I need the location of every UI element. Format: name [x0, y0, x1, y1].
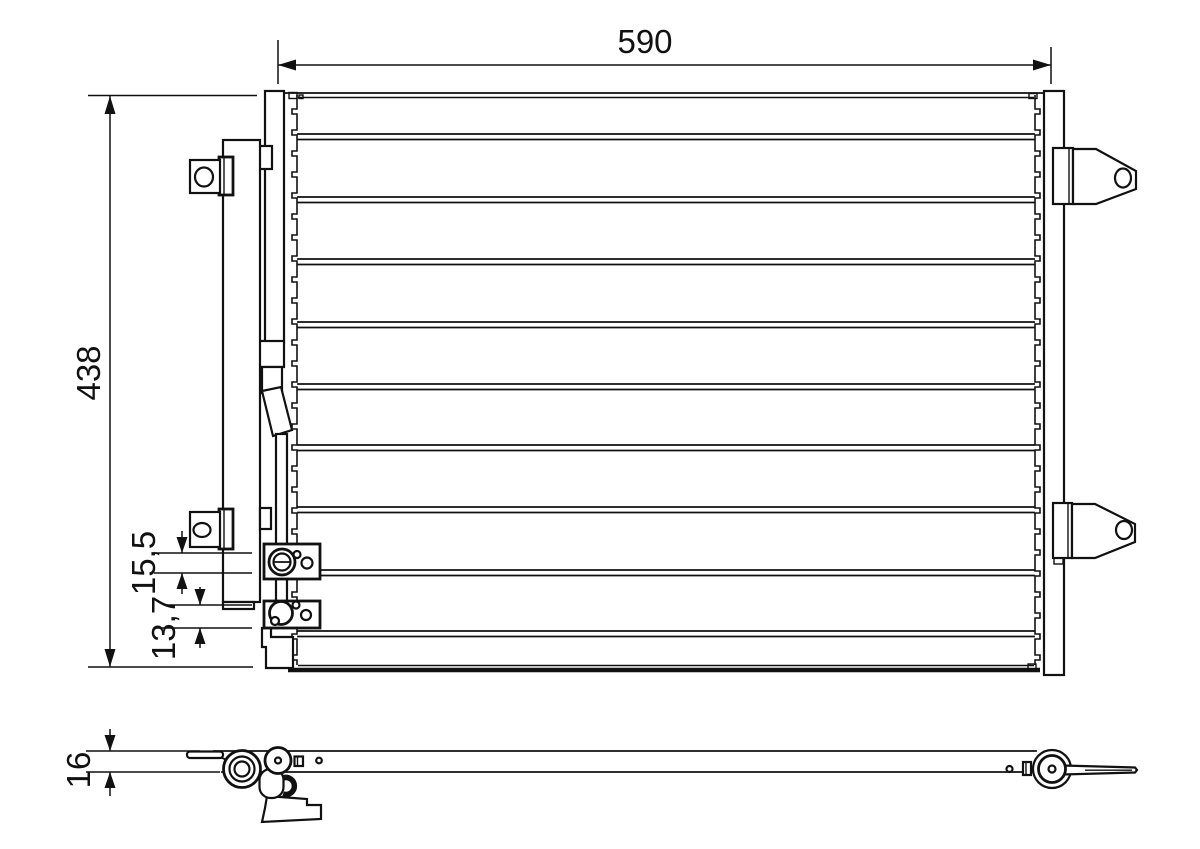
- bolt-hole-small: [293, 602, 300, 609]
- clip-ring: [283, 778, 294, 795]
- port-notch: [271, 617, 279, 625]
- dimension-depth-16: 16: [60, 729, 220, 796]
- mounting-bracket-lower-left: [190, 509, 233, 549]
- dimension-width-590: 590: [278, 23, 1051, 84]
- port-side-dot: [1049, 766, 1056, 773]
- bolt-hole: [302, 558, 313, 569]
- condenser-drawing: 590 438 15,5 13,7 16: [0, 0, 1200, 849]
- mounting-bracket-upper-left: [190, 157, 233, 195]
- dim-lower-offset-label: 13,7: [145, 596, 182, 660]
- pipe-mid: [276, 577, 287, 603]
- technical-drawing-canvas: 590 438 15,5 13,7 16: [0, 0, 1200, 849]
- top-tab: [187, 752, 223, 759]
- side-left-fittings: [187, 748, 322, 823]
- side-profile-view: [187, 748, 1137, 823]
- dim-depth-label: 16: [60, 752, 97, 789]
- pipe-lower: [276, 434, 287, 546]
- inlet-fitting-block: [264, 544, 320, 579]
- dim-width-label: 590: [617, 23, 672, 60]
- dim-height-label: 438: [70, 345, 107, 400]
- rivet-hole: [316, 758, 322, 764]
- flange-inner: [235, 762, 250, 777]
- side-right-fittings: [1007, 750, 1138, 788]
- outlet-fitting-block: [264, 601, 320, 628]
- core-top-edge: [284, 93, 1044, 99]
- bolt-hole: [301, 610, 311, 620]
- front-view: [190, 91, 1136, 675]
- foot-plate: [262, 796, 321, 822]
- tab-hole: [1115, 169, 1131, 188]
- bracket-clip: [295, 757, 304, 767]
- tab-hole: [1116, 521, 1132, 539]
- condenser-tubes: [298, 134, 1034, 637]
- mounting-tab-upper-right: [1053, 148, 1136, 204]
- dim-upper-offset-label: 15,5: [125, 531, 162, 595]
- mounting-tab-lower-right: [1053, 503, 1135, 558]
- rivet-hole: [1007, 766, 1013, 772]
- port-side-dot: [275, 758, 281, 764]
- drier-clamp-lower: [260, 508, 271, 529]
- bracket-hole: [194, 523, 211, 537]
- bracket-clip: [1023, 762, 1031, 775]
- bracket-hole: [195, 168, 213, 187]
- bolt-hole-small: [294, 551, 301, 558]
- core-bottom-edge: [288, 666, 1040, 671]
